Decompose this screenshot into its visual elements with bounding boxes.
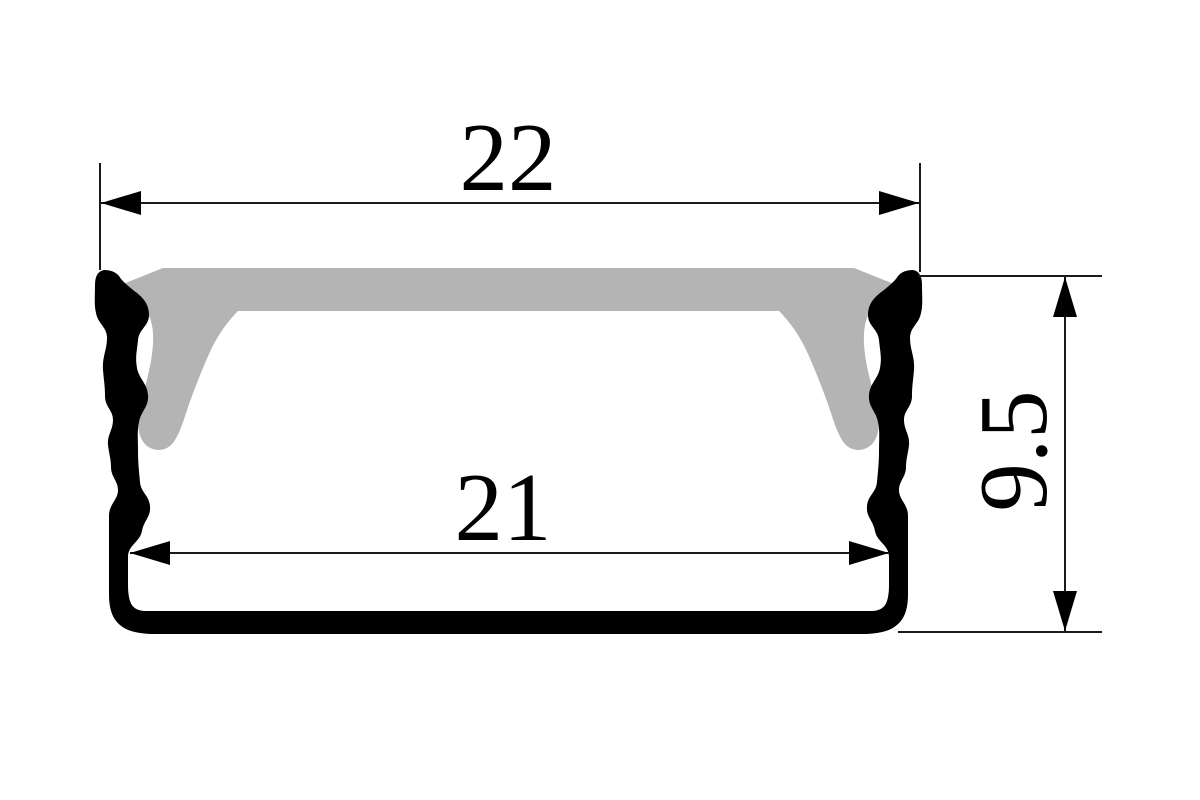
profile-cross-section-drawing: 22 21 9.5 bbox=[0, 0, 1200, 800]
diffuser-cover bbox=[113, 268, 904, 450]
diffuser-cover-left bbox=[113, 268, 512, 450]
arrow-icon bbox=[130, 541, 170, 565]
technical-drawing-page: 22 21 9.5 bbox=[0, 0, 1200, 800]
dimension-label-top-width: 22 bbox=[460, 104, 557, 211]
arrow-icon bbox=[879, 191, 919, 215]
diffuser-cover-right bbox=[505, 268, 904, 450]
dimension-arrowheads bbox=[101, 191, 1077, 631]
arrow-icon bbox=[101, 191, 141, 215]
dimension-label-inner-width: 21 bbox=[455, 454, 552, 561]
arrow-icon bbox=[849, 541, 889, 565]
dimension-label-height: 9.5 bbox=[960, 390, 1067, 511]
arrow-icon bbox=[1053, 277, 1077, 317]
arrow-icon bbox=[1053, 591, 1077, 631]
dimension-lines bbox=[100, 163, 1102, 632]
